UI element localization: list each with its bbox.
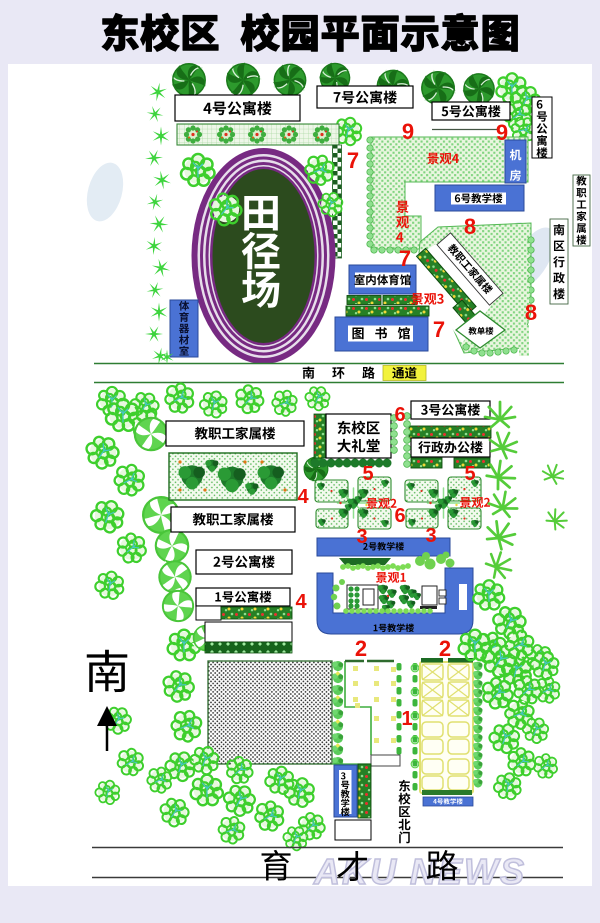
svg-text:9: 9 — [496, 120, 508, 145]
svg-text:7: 7 — [347, 148, 359, 173]
svg-text:5: 5 — [464, 463, 475, 485]
svg-text:8: 8 — [525, 300, 537, 325]
svg-text:8: 8 — [464, 214, 476, 239]
svg-text:6: 6 — [394, 404, 405, 426]
svg-text:7: 7 — [399, 246, 411, 271]
svg-text:7: 7 — [433, 317, 445, 342]
svg-text:2: 2 — [439, 636, 451, 661]
svg-text:3: 3 — [356, 526, 367, 548]
svg-text:1: 1 — [401, 708, 412, 730]
svg-text:4: 4 — [297, 486, 309, 508]
svg-text:4: 4 — [295, 591, 307, 613]
svg-text:5: 5 — [362, 463, 373, 485]
svg-text:3: 3 — [425, 525, 436, 547]
svg-text:9: 9 — [402, 119, 414, 144]
svg-text:6: 6 — [394, 505, 405, 527]
svg-text:2: 2 — [355, 636, 367, 661]
